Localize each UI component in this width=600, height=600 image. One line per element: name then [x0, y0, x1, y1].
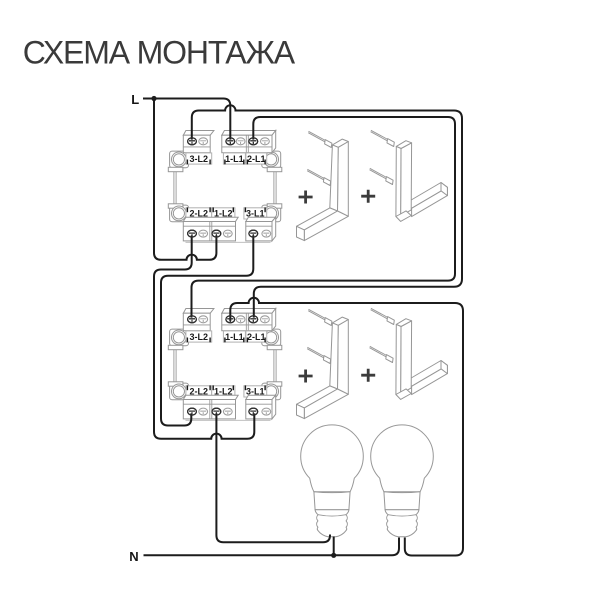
svg-text:3-L2: 3-L2 — [190, 154, 209, 164]
svg-text:СХЕМА МОНТАЖА: СХЕМА МОНТАЖА — [23, 35, 296, 71]
svg-text:L: L — [131, 92, 139, 107]
svg-text:2-L1: 2-L1 — [247, 332, 266, 342]
svg-text:3-L2: 3-L2 — [190, 332, 209, 342]
svg-text:2-L1: 2-L1 — [247, 154, 266, 164]
svg-text:N: N — [129, 549, 138, 564]
svg-text:1-L1: 1-L1 — [225, 154, 244, 164]
svg-text:1-L1: 1-L1 — [225, 332, 244, 342]
